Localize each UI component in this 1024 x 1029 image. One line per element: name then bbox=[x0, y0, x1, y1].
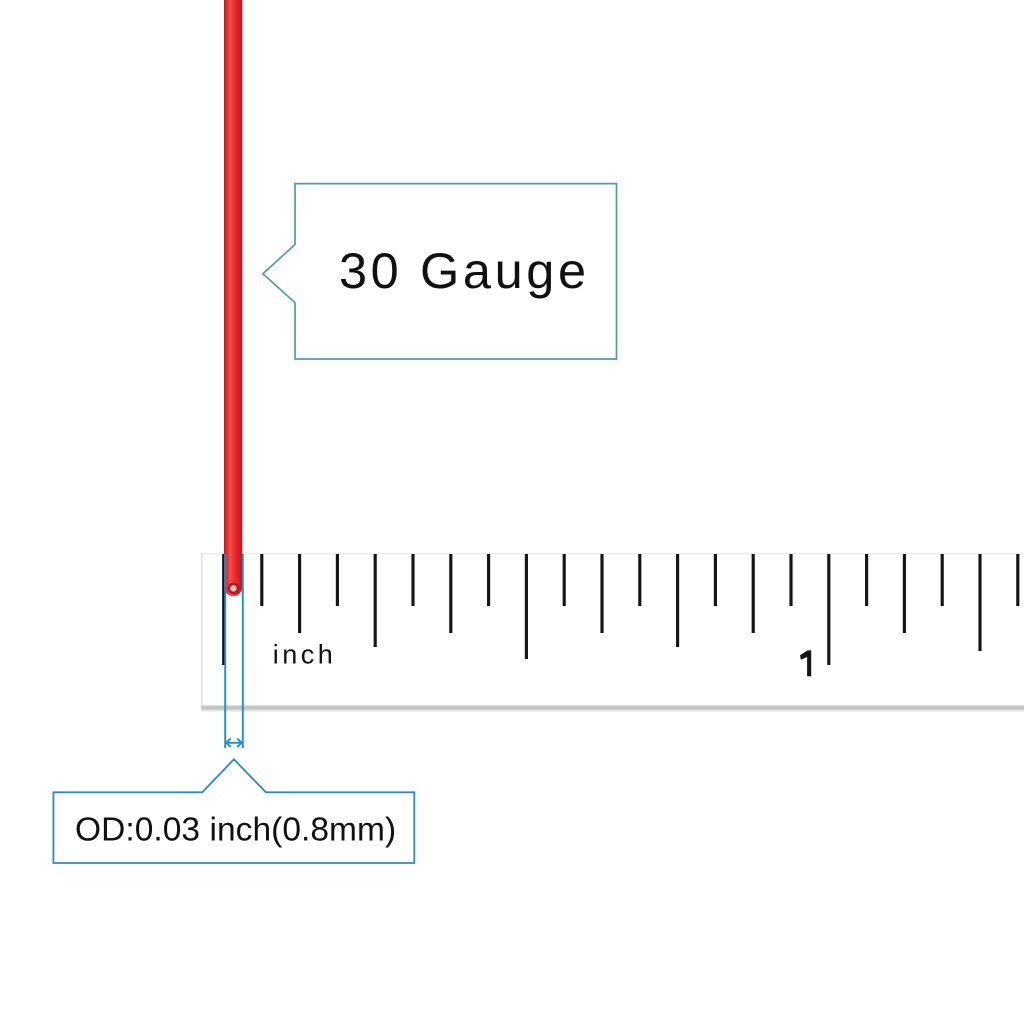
svg-text:inch: inch bbox=[273, 640, 337, 670]
svg-text:30 Gauge: 30 Gauge bbox=[339, 242, 590, 299]
svg-text:OD:0.03 inch(0.8mm): OD:0.03 inch(0.8mm) bbox=[75, 812, 396, 849]
